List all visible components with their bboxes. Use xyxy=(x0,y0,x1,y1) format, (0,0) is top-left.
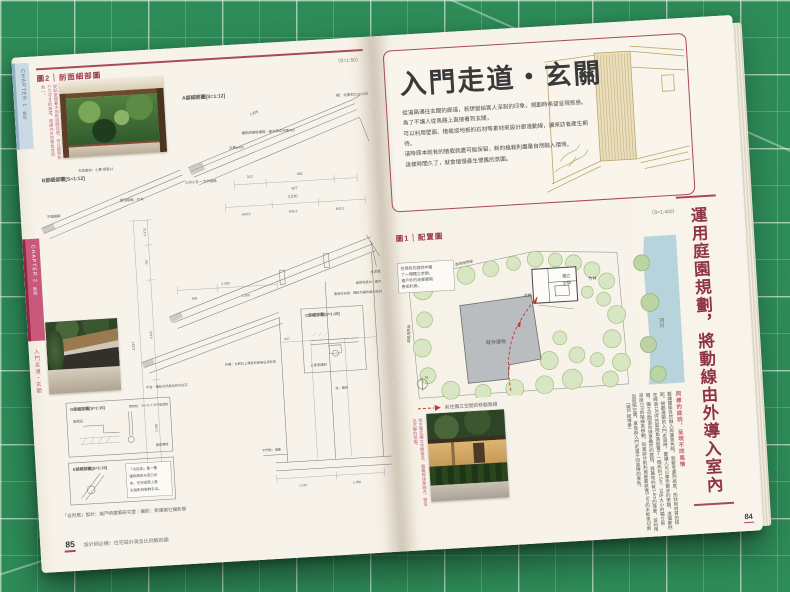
material-roofboard: 屋頂底板：杉木 xyxy=(120,196,145,202)
dim-843b: 843.3 xyxy=(289,209,298,214)
material-tilefloor: 上等瓷磚材 xyxy=(310,362,328,368)
dim-452: 452 xyxy=(297,172,303,176)
material-wall: 外牆：水刷石上薄塗砂漿後石灰刷漆 xyxy=(225,359,277,367)
dim-212: 212 xyxy=(247,175,253,179)
book-tagline: 設計師必備！住宅設計黃金比例解剖圖 xyxy=(84,536,169,548)
detail-b-label: B部細部圖[S=1:12] xyxy=(41,175,85,185)
commentary-body: 要讓建築自然融入周邊景色時，就要考慮到高度、形狀和材質的搭配。規劃建築的入門走道… xyxy=(631,391,682,535)
dim-1372: 1,372 xyxy=(143,228,147,236)
dim-627: 627 xyxy=(284,337,290,341)
material-steelpost: 鋼管柱：75×75 十文字型底板 xyxy=(129,401,168,408)
porch-photo xyxy=(45,318,121,394)
right-page: 入門走道・玄關 從道路通往玄關的廊道，若想留給客人深刻的印象，規劃時希望呈現質感… xyxy=(372,15,763,552)
material-terrace: 平台：鋪設天然風化的大谷石 xyxy=(146,382,188,389)
dim-827: 827 xyxy=(291,186,297,190)
dim-1760: 1,760 xyxy=(154,424,158,432)
hedge-house-photo xyxy=(426,409,509,501)
material-post: 柱：扁柏 xyxy=(335,384,348,390)
dim-2150: 2,150 xyxy=(221,281,230,286)
material-edge: 屋頂收邊材：扁木 xyxy=(356,278,383,285)
material-anchor: 固定螺栓 xyxy=(156,441,170,447)
figure1-scale: （S=1:400） xyxy=(649,208,678,217)
material-ceiling: 天花板材：小舞 厚度12 xyxy=(78,166,114,173)
veranda-photo xyxy=(59,76,167,158)
left-page: CHAPTER 1 格局 CHAPTER 2 動線 入門走道・玄關 圖2｜剖面細… xyxy=(11,36,402,573)
dim-1350a: 1,350 xyxy=(242,293,250,297)
photo-door xyxy=(473,442,485,463)
dim-843c: 843.3 xyxy=(336,206,345,211)
detail-a-label: A部細部圖[S=1:12] xyxy=(182,92,226,102)
existing-building-label: 既存建物 xyxy=(486,338,506,346)
dim-1222: 1,222 xyxy=(299,483,307,487)
photo-ground xyxy=(430,481,509,501)
material-cementboard: 水泥板 xyxy=(370,268,381,274)
lower-roof-hatch xyxy=(141,358,155,369)
cutting-mat: CHAPTER 1 格局 CHAPTER 2 動線 入門走道・玄關 圖2｜剖面細… xyxy=(0,0,790,592)
detail-e-label: E部細部圖[S=1:15] xyxy=(73,464,108,472)
material-kawarabo: 瓦棒φ455 xyxy=(229,144,244,150)
north-label: N xyxy=(425,375,428,380)
material-beam: 樑：北美材210×120 xyxy=(336,91,368,98)
vertical-headline: 運用庭園規劃，將動線由外導入室內 xyxy=(688,206,722,494)
independent-space xyxy=(532,267,578,312)
page-number-85: 85 xyxy=(64,539,76,553)
plan-note-line: 善加利用。 xyxy=(401,282,421,289)
page-number-84: 84 xyxy=(743,512,754,524)
intro-paragraph: 從道路通往玄關的廊道，若想留給客人深刻的印象，規劃時希望呈現質感。 為了不讓人從… xyxy=(402,98,593,171)
material-steppingstone: 沓脫石 xyxy=(73,418,84,424)
open-book: CHAPTER 1 格局 CHAPTER 2 動線 入門走道・玄關 圖2｜剖面細… xyxy=(11,15,762,573)
main-roof-hatch xyxy=(169,311,184,323)
material-mesh: 不鏽鋼網 xyxy=(47,213,61,219)
entrance-label: 玄關 xyxy=(524,292,532,297)
dim-4237: 4,237 xyxy=(131,342,136,351)
dim-2530: 2,530 xyxy=(288,194,298,199)
material-sill: 下門框：湘桑 xyxy=(262,447,282,453)
site-plan: 既存建物 獨立 空間 玄關 竹林 河川 鄰地境界線 道路境界線 xyxy=(394,231,685,402)
figure1-label: 圖1｜配置圖 xyxy=(395,231,443,245)
route-legend-icon xyxy=(418,404,442,412)
material-eave-ceiling: 簷廊天花板：繩紋竹編的屋木底材 xyxy=(334,288,383,296)
commentary-column: 同樣的庭院，呈現不同風情 要讓建築自然融入周邊景色時，就要考慮到高度、形狀和材質… xyxy=(561,391,689,540)
detail-c-label: C部細部圖[S=1:15] xyxy=(305,310,341,318)
material-tile: 三州小瓦 一文字葺鋪 xyxy=(185,178,217,185)
dim-1350b: 1,350 xyxy=(353,480,361,484)
boundary-top-label: 鄰地境界線 xyxy=(455,258,474,267)
hedge-photo-caption: 從主屋往獨立空間望去，圍籬與綠意融合，營造出沉靜的氛圍。 xyxy=(409,418,428,507)
boundary-left-label: 道路境界線 xyxy=(406,324,411,342)
dim-800: 800 xyxy=(192,296,198,300)
headline-rule-bottom xyxy=(694,502,734,506)
bamboo-label: 竹林 xyxy=(588,274,598,282)
figure1-badge: 圖1 xyxy=(395,234,409,244)
detail-d-label: D部細部圖[S=1:15] xyxy=(70,404,106,412)
photo-floor xyxy=(48,366,121,395)
dim-757: 757 xyxy=(145,259,149,265)
dim-1835: 1,835 xyxy=(249,110,259,117)
material-roof-sheet: 鍍鋁鋅鋼板橫葺：椽木厚石材板455 xyxy=(241,127,294,135)
chapter-title-box: 入門走道・玄關 從道路通往玄關的廊道，若想留給客人深刻的印象，規劃時希望呈現質感… xyxy=(383,33,696,213)
dim-843a: 843.3 xyxy=(242,212,251,217)
photo-foliage xyxy=(66,93,160,147)
figure1-title: 配置圖 xyxy=(418,232,444,242)
dim-3115: 3,115 xyxy=(149,331,153,339)
river-label: 河川 xyxy=(658,317,665,328)
